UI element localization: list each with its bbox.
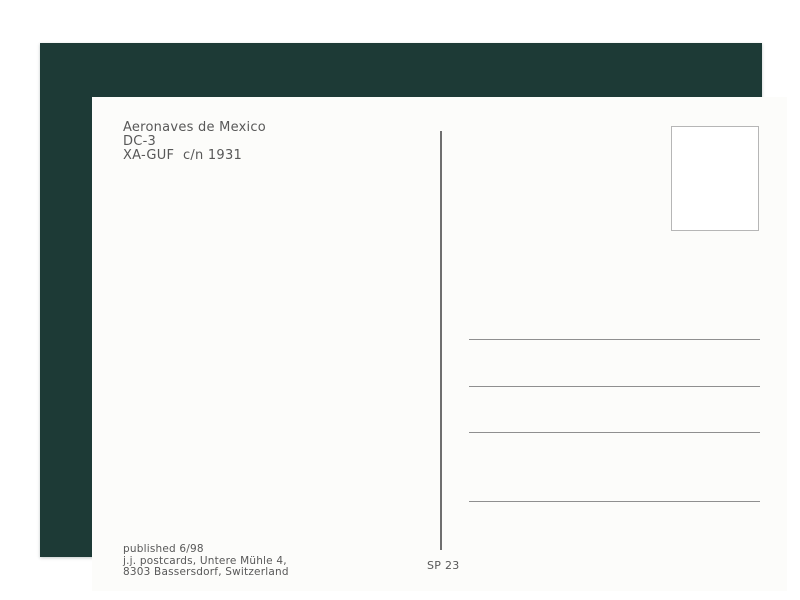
publisher-city-line: 8303 Bassersdorf, Switzerland <box>123 567 289 579</box>
stamp-box <box>671 126 759 231</box>
postcard-green-frame: Aeronaves de Mexico DC-3 XA-GUF c/n 1931… <box>40 43 762 557</box>
address-rule-line-3 <box>469 432 760 433</box>
series-number: SP 23 <box>427 559 460 572</box>
caption-registration: XA-GUF c/n 1931 <box>123 149 266 163</box>
postcard-back: Aeronaves de Mexico DC-3 XA-GUF c/n 1931… <box>92 97 787 591</box>
caption-block: Aeronaves de Mexico DC-3 XA-GUF c/n 1931 <box>123 121 266 163</box>
center-divider-line <box>440 131 442 550</box>
address-rule-line-1 <box>469 339 760 340</box>
scanned-postcard-page: Aeronaves de Mexico DC-3 XA-GUF c/n 1931… <box>0 0 800 600</box>
caption-airline: Aeronaves de Mexico <box>123 121 266 135</box>
caption-aircraft-type: DC-3 <box>123 135 266 149</box>
publisher-block: published 6/98 j.j. postcards, Untere Mü… <box>123 544 289 579</box>
address-rule-line-2 <box>469 386 760 387</box>
publisher-published-line: published 6/98 <box>123 544 289 556</box>
address-rule-line-4 <box>469 501 760 502</box>
